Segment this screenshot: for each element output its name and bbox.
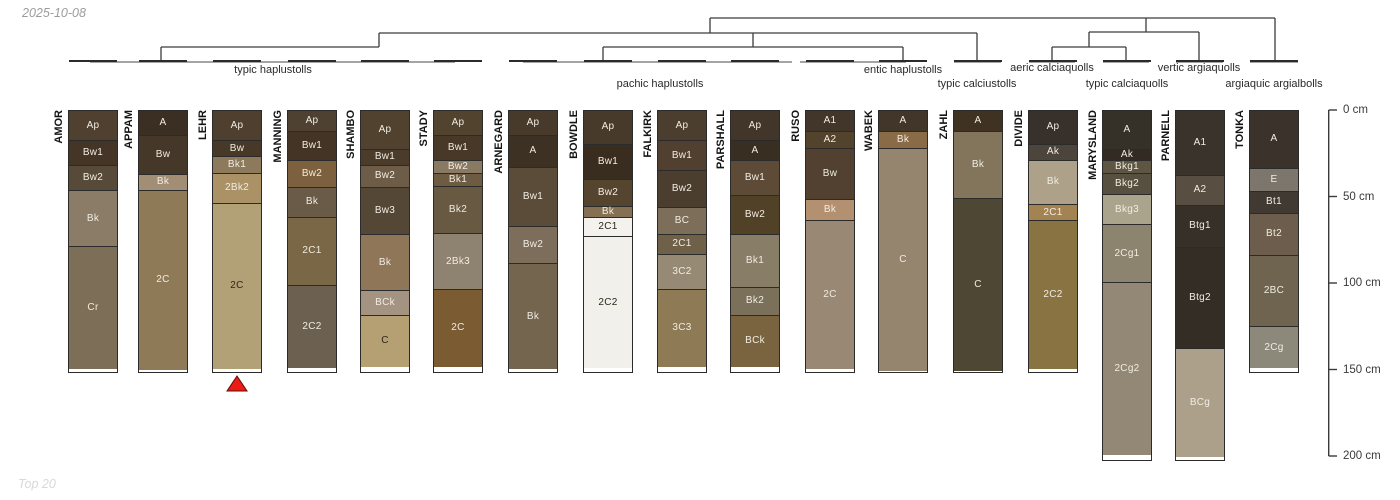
horizon-amor-bw2: Bw2: [69, 166, 117, 191]
horizon-arnegard-ap: Ap: [509, 111, 557, 136]
horizon-shambo-bw2: Bw2: [361, 166, 409, 187]
taxon-label: argiaquic argialbolls: [1225, 78, 1322, 90]
horizon-shambo-ap: Ap: [361, 111, 409, 150]
taxon-label: aeric calciaquolls: [1010, 62, 1094, 74]
horizon-label: Bk: [87, 214, 99, 224]
series-name: PARNELL: [1160, 110, 1172, 161]
horizon-label: 2Bk2: [225, 183, 249, 193]
horizon-parshall-bk2: Bk2: [731, 288, 779, 316]
horizon-parnell-a2: A2: [1176, 176, 1224, 206]
horizon-label: Bk1: [746, 256, 764, 266]
horizon-label: Bw2: [375, 171, 395, 181]
horizon-label: A: [1271, 134, 1278, 144]
horizon-shambo-bck: BCk: [361, 291, 409, 316]
horizon-arnegard-bw2: Bw2: [509, 227, 557, 264]
horizon-label: A: [530, 146, 537, 156]
horizon-bowdle-2c1: 2C1: [584, 218, 632, 238]
soil-profile-plot: 2025-10-08 typic haplustollspachic haplu…: [0, 0, 1400, 500]
horizon-label: Ap: [379, 125, 392, 135]
horizon-ruso-2c: 2C: [806, 221, 854, 369]
horizon-parnell-btg2: Btg2: [1176, 248, 1224, 349]
horizon-stady-bk2: Bk2: [434, 187, 482, 234]
horizon-label: Bw: [230, 144, 245, 154]
horizon-lehr-ap: Ap: [213, 111, 261, 141]
horizon-bowdle-bw2: Bw2: [584, 180, 632, 207]
horizon-shambo-bk: Bk: [361, 235, 409, 291]
horizon-parshall-bck: BCk: [731, 316, 779, 367]
horizon-falkirk-ap: Ap: [658, 111, 706, 141]
horizon-stady-bk1: Bk1: [434, 174, 482, 187]
horizon-label: BCk: [375, 298, 395, 308]
horizon-marysland-bkg1: Bkg1: [1103, 161, 1151, 174]
horizon-label: Bk: [379, 258, 391, 268]
horizon-marysland-bkg3: Bkg3: [1103, 195, 1151, 225]
horizon-divide-ap: Ap: [1029, 111, 1077, 145]
taxon-label: entic haplustolls: [864, 64, 942, 76]
horizon-label: Ap: [676, 121, 689, 131]
horizon-label: Bk: [824, 205, 836, 215]
horizon-label: Bw1: [375, 152, 395, 162]
horizon-label: 3C2: [672, 267, 691, 277]
horizon-stady-2c: 2C: [434, 290, 482, 367]
horizon-label: Bk2: [449, 205, 467, 215]
horizon-marysland-a: A: [1103, 111, 1151, 150]
horizon-appam-bw: Bw: [139, 136, 187, 175]
horizon-divide-2c2: 2C2: [1029, 221, 1077, 369]
horizon-label: Ak: [1047, 147, 1059, 157]
horizon-tonka-2bc: 2BC: [1250, 256, 1298, 328]
horizon-amor-cr: Cr: [69, 247, 117, 369]
horizon-label: Bk2: [746, 296, 764, 306]
horizon-label: Bw1: [598, 157, 618, 167]
horizon-label: Bw1: [672, 151, 692, 161]
horizon-stady-bw2: Bw2: [434, 161, 482, 174]
horizon-label: 2Bk3: [446, 257, 470, 267]
horizon-tonka-bt2: Bt2: [1250, 214, 1298, 256]
taxon-label: vertic argiaquolls: [1158, 62, 1241, 74]
horizon-label: Bt2: [1266, 229, 1282, 239]
footer-note: Top 20: [18, 477, 56, 491]
horizon-arnegard-bk: Bk: [509, 264, 557, 369]
horizon-label: Bw1: [745, 173, 765, 183]
horizon-manning-bw1: Bw1: [288, 132, 336, 160]
series-name: LEHR: [197, 110, 209, 140]
horizon-divide-ak: Ak: [1029, 145, 1077, 161]
series-name: AMOR: [53, 110, 65, 144]
horizon-label: C: [974, 280, 982, 290]
horizon-label: A2: [824, 135, 837, 145]
profile-column-parnell: PARNELLA1A2Btg1Btg2BCg: [1175, 110, 1225, 461]
horizon-label: Bk: [897, 135, 909, 145]
horizon-stady-ap: Ap: [434, 111, 482, 136]
profile-column-lehr: LEHRApBwBk12Bk22C: [212, 110, 262, 373]
profile-column-marysland: MARYSLANDAAkBkg1Bkg2Bkg32Cg12Cg2: [1102, 110, 1152, 461]
profile-column-tonka: TONKAAEBt1Bt22BC2Cg: [1249, 110, 1299, 373]
horizon-stady-bw1: Bw1: [434, 136, 482, 161]
horizon-label: Bw1: [302, 141, 322, 151]
horizon-lehr-2bk2: 2Bk2: [213, 174, 261, 204]
horizon-zahl-c: C: [954, 199, 1002, 371]
horizon-label: Bw2: [598, 188, 618, 198]
series-name: DIVIDE: [1013, 110, 1025, 147]
horizon-falkirk-3c2: 3C2: [658, 255, 706, 290]
series-name: SHAMBO: [345, 110, 357, 159]
depth-axis-lines: [1328, 0, 1398, 500]
horizon-label: 2C2: [598, 298, 617, 308]
horizon-label: Bk: [972, 160, 984, 170]
series-name: BOWDLE: [568, 110, 580, 159]
horizon-falkirk-2c1: 2C1: [658, 235, 706, 255]
horizon-label: 2C1: [302, 246, 321, 256]
horizon-wabek-bk: Bk: [879, 132, 927, 148]
horizon-divide-bk: Bk: [1029, 161, 1077, 205]
profile-column-appam: APPAMABwBk2C: [138, 110, 188, 373]
horizon-label: Ap: [87, 121, 100, 131]
horizon-label: Cr: [87, 303, 98, 313]
horizon-falkirk-bc: BC: [658, 208, 706, 235]
horizon-amor-bk: Bk: [69, 191, 117, 247]
horizon-falkirk-3c3: 3C3: [658, 290, 706, 367]
horizon-falkirk-bw1: Bw1: [658, 141, 706, 171]
horizon-label: A: [975, 116, 982, 126]
horizon-label: A: [1124, 125, 1131, 135]
horizon-label: Bk1: [449, 175, 467, 185]
horizon-label: Ap: [452, 118, 465, 128]
horizon-label: A1: [824, 116, 837, 126]
horizon-label: Bk: [306, 197, 318, 207]
taxon-label: typic calciaquolls: [1086, 78, 1169, 90]
series-name: ZAHL: [938, 110, 950, 139]
horizon-label: 2BC: [1264, 286, 1284, 296]
horizon-ruso-bk: Bk: [806, 200, 854, 221]
horizon-tonka-bt1: Bt1: [1250, 192, 1298, 213]
taxon-label: typic haplustolls: [234, 64, 312, 76]
horizon-label: Btg1: [1189, 221, 1211, 231]
profile-column-stady: STADYApBw1Bw2Bk1Bk22Bk32C: [433, 110, 483, 373]
horizon-label: A1: [1194, 138, 1207, 148]
horizon-label: Bk1: [228, 160, 246, 170]
horizon-marysland-2cg2: 2Cg2: [1103, 283, 1151, 455]
horizon-label: A: [752, 146, 759, 156]
horizon-label: Bw2: [83, 173, 103, 183]
profile-column-ruso: RUSOA1A2BwBk2C: [805, 110, 855, 373]
profile-column-divide: DIVIDEApAkBk2C12C2: [1028, 110, 1078, 373]
horizon-bowdle-bk: Bk: [584, 207, 632, 218]
series-name: MARYSLAND: [1087, 110, 1099, 180]
horizon-label: Ap: [527, 118, 540, 128]
horizon-label: 3C3: [672, 323, 691, 333]
horizon-bowdle-2c2: 2C2: [584, 237, 632, 367]
horizon-parshall-ap: Ap: [731, 111, 779, 141]
horizon-wabek-a: A: [879, 111, 927, 132]
series-name: STADY: [418, 110, 430, 146]
horizon-label: Btg2: [1189, 293, 1211, 303]
horizon-zahl-bk: Bk: [954, 132, 1002, 198]
series-name: RUSO: [790, 110, 802, 142]
horizon-label: Bk: [157, 177, 169, 187]
horizon-label: BCg: [1190, 398, 1210, 408]
horizon-label: BCk: [745, 336, 765, 346]
horizon-label: Ap: [231, 121, 244, 131]
horizon-label: Bkg1: [1115, 162, 1139, 172]
horizon-label: Bw2: [745, 210, 765, 220]
horizon-label: C: [899, 255, 907, 265]
horizon-label: Ap: [1047, 122, 1060, 132]
horizon-parshall-bk1: Bk1: [731, 235, 779, 288]
horizon-marysland-ak: Ak: [1103, 150, 1151, 161]
horizon-bowdle-ap: Ap: [584, 111, 632, 145]
horizon-label: 2C2: [302, 322, 321, 332]
horizon-label: A2: [1194, 185, 1207, 195]
horizon-manning-bw2: Bw2: [288, 161, 336, 188]
series-name: FALKIRK: [642, 110, 654, 158]
horizon-parshall-bw2: Bw2: [731, 196, 779, 235]
profile-column-manning: MANNINGApBw1Bw2Bk2C12C2: [287, 110, 337, 373]
horizon-tonka-2cg: 2Cg: [1250, 327, 1298, 368]
horizon-marysland-bkg2: Bkg2: [1103, 174, 1151, 195]
horizon-zahl-a: A: [954, 111, 1002, 132]
horizon-manning-ap: Ap: [288, 111, 336, 132]
horizon-manning-bk: Bk: [288, 188, 336, 218]
horizon-label: Bw2: [523, 240, 543, 250]
horizon-label: Bw: [156, 150, 171, 160]
horizon-bowdle-bw1: Bw1: [584, 145, 632, 180]
profile-column-zahl: ZAHLABkC: [953, 110, 1003, 373]
profile-column-shambo: SHAMBOApBw1Bw2Bw3BkBCkC: [360, 110, 410, 373]
horizon-label: Bw2: [448, 162, 468, 172]
horizon-label: Bk: [1047, 177, 1059, 187]
profile-column-amor: AMORApBw1Bw2BkCr: [68, 110, 118, 373]
horizon-parnell-a1: A1: [1176, 111, 1224, 176]
horizon-label: 2C: [823, 290, 836, 300]
horizon-lehr-bk1: Bk1: [213, 157, 261, 173]
horizon-wabek-c: C: [879, 149, 927, 371]
horizon-ruso-bw: Bw: [806, 149, 854, 200]
horizon-label: Bkg2: [1115, 179, 1139, 189]
series-name: MANNING: [272, 110, 284, 163]
horizon-arnegard-a: A: [509, 136, 557, 168]
horizon-amor-bw1: Bw1: [69, 141, 117, 166]
horizon-label: Bw2: [302, 169, 322, 179]
horizon-label: 2C: [451, 323, 464, 333]
horizon-ruso-a2: A2: [806, 132, 854, 148]
horizon-ruso-a1: A1: [806, 111, 854, 132]
horizon-amor-ap: Ap: [69, 111, 117, 141]
taxon-label: pachic haplustolls: [617, 78, 704, 90]
horizon-arnegard-bw1: Bw1: [509, 168, 557, 228]
series-name: APPAM: [123, 110, 135, 149]
series-name: PARSHALL: [715, 110, 727, 169]
horizon-divide-2c1: 2C1: [1029, 205, 1077, 221]
horizon-label: 2C2: [1043, 290, 1062, 300]
taxon-label: typic calciustolls: [938, 78, 1017, 90]
horizon-label: 2C1: [672, 239, 691, 249]
horizon-manning-2c2: 2C2: [288, 286, 336, 368]
horizon-lehr-bw: Bw: [213, 141, 261, 157]
horizon-label: Bk: [602, 207, 614, 217]
horizon-label: Bt1: [1266, 197, 1282, 207]
horizon-label: Bw2: [672, 184, 692, 194]
profile-column-falkirk: FALKIRKApBw1Bw2BC2C13C23C3: [657, 110, 707, 373]
horizon-label: Bw3: [375, 206, 395, 216]
horizon-label: BC: [675, 216, 690, 226]
horizon-manning-2c1: 2C1: [288, 218, 336, 286]
horizon-marysland-2cg1: 2Cg1: [1103, 225, 1151, 283]
horizon-label: 2C: [156, 275, 169, 285]
horizon-lehr-2c: 2C: [213, 204, 261, 369]
horizon-label: Bw: [823, 169, 838, 179]
horizon-shambo-bw3: Bw3: [361, 188, 409, 235]
series-name: WABEK: [863, 110, 875, 151]
horizon-label: Bw1: [83, 148, 103, 158]
horizon-label: Ak: [1121, 150, 1133, 160]
profile-column-wabek: WABEKABkC: [878, 110, 928, 373]
horizon-label: 2Cg: [1264, 343, 1283, 353]
horizon-appam-a: A: [139, 111, 187, 136]
horizon-label: A: [160, 118, 167, 128]
horizon-parshall-bw1: Bw1: [731, 161, 779, 196]
horizon-parnell-btg1: Btg1: [1176, 206, 1224, 248]
horizon-label: 2C: [230, 281, 243, 291]
horizon-parshall-a: A: [731, 141, 779, 161]
horizon-label: Ap: [602, 122, 615, 132]
horizon-stady-2bk3: 2Bk3: [434, 234, 482, 290]
horizon-label: Ap: [749, 121, 762, 131]
horizon-parnell-bcg: BCg: [1176, 349, 1224, 457]
series-name: TONKA: [1234, 110, 1246, 149]
series-name: ARNEGARD: [493, 110, 505, 174]
horizon-label: 2Cg1: [1114, 249, 1139, 259]
horizon-label: 2C1: [1043, 208, 1062, 218]
profile-marker-triangle: [226, 375, 248, 393]
horizon-label: 2C1: [598, 222, 617, 232]
horizon-label: Bw1: [448, 143, 468, 153]
horizon-appam-2c: 2C: [139, 191, 187, 370]
horizon-label: Ap: [306, 116, 319, 126]
horizon-appam-bk: Bk: [139, 175, 187, 191]
horizon-shambo-c: C: [361, 316, 409, 367]
horizon-label: E: [1271, 175, 1278, 185]
profile-column-parshall: PARSHALLApABw1Bw2Bk1Bk2BCk: [730, 110, 780, 373]
horizon-shambo-bw1: Bw1: [361, 150, 409, 166]
horizon-label: 2Cg2: [1114, 364, 1139, 374]
profile-column-bowdle: BOWDLEApBw1Bw2Bk2C12C2: [583, 110, 633, 373]
horizon-label: A: [900, 116, 907, 126]
horizon-tonka-a: A: [1250, 111, 1298, 169]
horizon-falkirk-bw2: Bw2: [658, 171, 706, 208]
horizon-label: C: [381, 336, 389, 346]
horizon-tonka-e: E: [1250, 169, 1298, 192]
horizon-label: Bw1: [523, 192, 543, 202]
profile-column-arnegard: ARNEGARDApABw1Bw2Bk: [508, 110, 558, 373]
horizon-label: Bkg3: [1115, 205, 1139, 215]
horizon-label: Bk: [527, 312, 539, 322]
